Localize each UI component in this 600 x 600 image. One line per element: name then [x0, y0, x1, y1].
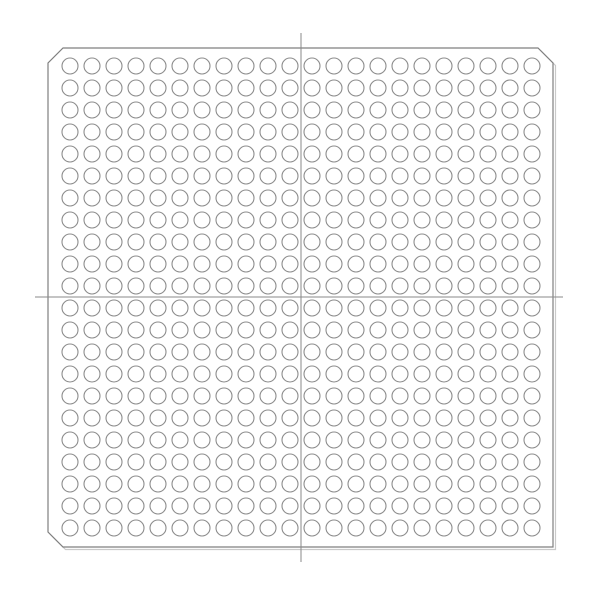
solder-ball — [370, 212, 386, 228]
solder-ball — [348, 388, 364, 404]
solder-ball — [480, 102, 496, 118]
solder-ball — [282, 498, 298, 514]
solder-ball — [238, 520, 254, 536]
solder-ball — [458, 476, 474, 492]
solder-ball — [150, 168, 166, 184]
solder-ball — [392, 58, 408, 74]
solder-ball — [84, 366, 100, 382]
solder-ball — [238, 256, 254, 272]
solder-ball — [502, 80, 518, 96]
solder-ball — [326, 388, 342, 404]
solder-ball — [502, 410, 518, 426]
solder-ball — [348, 498, 364, 514]
solder-ball — [304, 234, 320, 250]
solder-ball — [414, 124, 430, 140]
solder-ball — [502, 278, 518, 294]
solder-ball — [260, 344, 276, 360]
solder-ball — [172, 168, 188, 184]
solder-ball — [282, 344, 298, 360]
solder-ball — [128, 190, 144, 206]
solder-ball — [524, 432, 540, 448]
solder-ball — [370, 256, 386, 272]
solder-ball — [502, 212, 518, 228]
solder-ball — [172, 102, 188, 118]
solder-ball — [524, 58, 540, 74]
solder-ball — [238, 168, 254, 184]
solder-ball — [282, 146, 298, 162]
solder-ball — [238, 58, 254, 74]
solder-ball — [128, 58, 144, 74]
solder-ball — [216, 344, 232, 360]
solder-ball — [326, 476, 342, 492]
solder-ball — [392, 410, 408, 426]
solder-ball — [128, 454, 144, 470]
solder-ball — [502, 476, 518, 492]
solder-ball — [392, 520, 408, 536]
solder-ball — [348, 124, 364, 140]
solder-ball — [62, 410, 78, 426]
solder-ball — [458, 410, 474, 426]
solder-ball — [304, 520, 320, 536]
solder-ball — [480, 300, 496, 316]
solder-ball — [172, 256, 188, 272]
solder-ball — [502, 300, 518, 316]
solder-ball — [524, 124, 540, 140]
solder-ball — [194, 80, 210, 96]
solder-ball — [480, 476, 496, 492]
solder-ball — [502, 322, 518, 338]
solder-ball — [480, 212, 496, 228]
solder-ball — [370, 344, 386, 360]
solder-ball — [150, 410, 166, 426]
solder-ball — [436, 498, 452, 514]
solder-ball — [216, 520, 232, 536]
solder-ball — [524, 256, 540, 272]
solder-ball — [194, 388, 210, 404]
solder-ball — [458, 102, 474, 118]
solder-ball — [348, 300, 364, 316]
solder-ball — [106, 190, 122, 206]
solder-ball — [436, 168, 452, 184]
solder-ball — [106, 234, 122, 250]
solder-ball — [238, 322, 254, 338]
solder-ball — [458, 234, 474, 250]
solder-ball — [62, 498, 78, 514]
solder-ball — [128, 498, 144, 514]
solder-ball — [480, 454, 496, 470]
solder-ball — [84, 476, 100, 492]
solder-ball — [414, 432, 430, 448]
solder-ball — [480, 388, 496, 404]
solder-ball — [216, 278, 232, 294]
solder-ball — [304, 58, 320, 74]
solder-ball — [238, 102, 254, 118]
solder-ball — [150, 278, 166, 294]
solder-ball — [150, 520, 166, 536]
solder-ball — [480, 234, 496, 250]
solder-ball — [458, 454, 474, 470]
solder-ball — [370, 432, 386, 448]
solder-ball — [194, 190, 210, 206]
solder-ball — [62, 58, 78, 74]
solder-ball — [326, 322, 342, 338]
solder-ball — [458, 124, 474, 140]
solder-ball — [370, 410, 386, 426]
solder-ball — [216, 388, 232, 404]
solder-ball — [502, 102, 518, 118]
solder-ball — [128, 168, 144, 184]
solder-ball — [414, 168, 430, 184]
solder-ball — [216, 234, 232, 250]
solder-ball — [502, 256, 518, 272]
solder-ball — [458, 278, 474, 294]
solder-ball — [370, 366, 386, 382]
solder-ball — [150, 146, 166, 162]
solder-ball — [392, 168, 408, 184]
solder-ball — [480, 322, 496, 338]
solder-ball — [348, 256, 364, 272]
solder-ball — [502, 366, 518, 382]
solder-ball — [326, 212, 342, 228]
solder-ball — [436, 388, 452, 404]
solder-ball — [326, 498, 342, 514]
solder-ball — [128, 410, 144, 426]
solder-ball — [172, 278, 188, 294]
solder-ball — [216, 410, 232, 426]
solder-ball — [524, 498, 540, 514]
solder-ball — [502, 388, 518, 404]
solder-ball — [128, 256, 144, 272]
solder-ball — [216, 322, 232, 338]
solder-ball — [348, 520, 364, 536]
solder-ball — [480, 168, 496, 184]
solder-ball — [502, 454, 518, 470]
solder-ball — [62, 344, 78, 360]
solder-ball — [414, 344, 430, 360]
solder-ball — [128, 520, 144, 536]
solder-ball — [414, 256, 430, 272]
solder-ball — [194, 454, 210, 470]
solder-ball — [62, 520, 78, 536]
solder-ball — [524, 300, 540, 316]
solder-ball — [282, 520, 298, 536]
solder-ball — [128, 146, 144, 162]
solder-ball — [150, 58, 166, 74]
solder-ball — [84, 278, 100, 294]
solder-ball — [304, 366, 320, 382]
solder-ball — [370, 520, 386, 536]
solder-ball — [260, 520, 276, 536]
solder-ball — [348, 476, 364, 492]
solder-ball — [304, 432, 320, 448]
solder-ball — [84, 410, 100, 426]
solder-ball — [194, 234, 210, 250]
solder-ball — [128, 432, 144, 448]
solder-ball — [326, 366, 342, 382]
solder-ball — [238, 410, 254, 426]
solder-ball — [260, 146, 276, 162]
solder-ball — [502, 124, 518, 140]
solder-ball — [414, 322, 430, 338]
solder-ball — [238, 212, 254, 228]
solder-ball — [524, 322, 540, 338]
solder-ball — [172, 322, 188, 338]
solder-ball — [84, 344, 100, 360]
solder-ball — [304, 476, 320, 492]
solder-ball — [238, 366, 254, 382]
solder-ball — [304, 498, 320, 514]
solder-ball — [128, 212, 144, 228]
solder-ball — [106, 256, 122, 272]
solder-ball — [194, 102, 210, 118]
solder-ball — [436, 300, 452, 316]
solder-ball — [62, 168, 78, 184]
solder-ball — [282, 322, 298, 338]
solder-ball — [106, 168, 122, 184]
solder-ball — [436, 432, 452, 448]
solder-ball — [392, 498, 408, 514]
solder-ball — [128, 366, 144, 382]
solder-ball — [458, 80, 474, 96]
solder-ball — [282, 124, 298, 140]
solder-ball — [150, 300, 166, 316]
solder-ball — [216, 454, 232, 470]
solder-ball — [524, 212, 540, 228]
solder-ball — [414, 366, 430, 382]
solder-ball — [84, 102, 100, 118]
solder-ball — [150, 366, 166, 382]
solder-ball — [370, 58, 386, 74]
solder-ball — [194, 256, 210, 272]
solder-ball — [172, 124, 188, 140]
solder-ball — [524, 146, 540, 162]
solder-ball — [348, 344, 364, 360]
solder-ball — [524, 520, 540, 536]
solder-ball — [458, 344, 474, 360]
solder-ball — [150, 190, 166, 206]
solder-ball — [524, 102, 540, 118]
solder-ball — [282, 234, 298, 250]
solder-ball — [216, 300, 232, 316]
solder-ball — [172, 432, 188, 448]
solder-ball — [392, 124, 408, 140]
solder-ball — [282, 366, 298, 382]
solder-ball — [480, 58, 496, 74]
solder-ball — [304, 146, 320, 162]
solder-ball — [304, 102, 320, 118]
solder-ball — [458, 190, 474, 206]
solder-ball — [216, 256, 232, 272]
solder-ball — [106, 520, 122, 536]
solder-ball — [260, 102, 276, 118]
solder-ball — [326, 80, 342, 96]
solder-ball — [348, 80, 364, 96]
solder-ball — [524, 476, 540, 492]
solder-ball — [260, 454, 276, 470]
solder-ball — [106, 432, 122, 448]
solder-ball — [106, 344, 122, 360]
solder-ball — [392, 454, 408, 470]
solder-ball — [128, 388, 144, 404]
solder-ball — [524, 190, 540, 206]
solder-ball — [62, 278, 78, 294]
solder-ball — [238, 234, 254, 250]
solder-ball — [238, 80, 254, 96]
solder-ball — [84, 80, 100, 96]
solder-ball — [392, 344, 408, 360]
solder-ball — [304, 168, 320, 184]
solder-ball — [128, 476, 144, 492]
solder-ball — [502, 146, 518, 162]
solder-ball — [106, 80, 122, 96]
solder-ball — [150, 454, 166, 470]
solder-ball — [370, 168, 386, 184]
solder-ball — [370, 498, 386, 514]
solder-ball — [370, 454, 386, 470]
solder-ball — [260, 124, 276, 140]
solder-ball — [216, 498, 232, 514]
solder-ball — [370, 388, 386, 404]
solder-ball — [436, 102, 452, 118]
solder-ball — [84, 190, 100, 206]
solder-ball — [370, 146, 386, 162]
solder-ball — [128, 300, 144, 316]
solder-ball — [150, 498, 166, 514]
solder-ball — [480, 366, 496, 382]
solder-ball — [282, 432, 298, 448]
solder-ball — [436, 234, 452, 250]
solder-ball — [326, 300, 342, 316]
solder-ball — [238, 454, 254, 470]
solder-ball — [436, 124, 452, 140]
solder-ball — [304, 124, 320, 140]
solder-ball — [370, 190, 386, 206]
solder-ball — [414, 278, 430, 294]
solder-ball — [414, 454, 430, 470]
solder-ball — [194, 498, 210, 514]
solder-ball — [348, 58, 364, 74]
solder-ball — [326, 190, 342, 206]
solder-ball — [304, 344, 320, 360]
solder-ball — [150, 344, 166, 360]
solder-ball — [348, 322, 364, 338]
solder-ball — [348, 410, 364, 426]
solder-ball — [524, 388, 540, 404]
solder-ball — [502, 344, 518, 360]
solder-ball — [62, 80, 78, 96]
solder-ball — [348, 190, 364, 206]
solder-ball — [480, 498, 496, 514]
solder-ball — [414, 58, 430, 74]
solder-ball — [106, 366, 122, 382]
solder-ball — [370, 234, 386, 250]
solder-ball — [348, 146, 364, 162]
solder-ball — [458, 146, 474, 162]
solder-ball — [84, 432, 100, 448]
solder-ball — [370, 124, 386, 140]
solder-ball — [304, 256, 320, 272]
solder-ball — [370, 278, 386, 294]
solder-ball — [326, 124, 342, 140]
solder-ball — [238, 344, 254, 360]
solder-ball — [436, 322, 452, 338]
solder-ball — [172, 410, 188, 426]
solder-ball — [458, 366, 474, 382]
solder-ball — [150, 102, 166, 118]
solder-ball — [282, 454, 298, 470]
solder-ball — [260, 256, 276, 272]
solder-ball — [282, 388, 298, 404]
solder-ball — [502, 498, 518, 514]
solder-ball — [326, 234, 342, 250]
solder-ball — [216, 124, 232, 140]
solder-ball — [458, 520, 474, 536]
solder-ball — [304, 322, 320, 338]
solder-ball — [172, 520, 188, 536]
solder-ball — [260, 190, 276, 206]
solder-ball — [304, 410, 320, 426]
solder-ball — [150, 234, 166, 250]
solder-ball — [304, 80, 320, 96]
solder-ball — [458, 256, 474, 272]
solder-ball — [106, 388, 122, 404]
solder-ball — [238, 300, 254, 316]
solder-ball — [216, 432, 232, 448]
solder-ball — [62, 366, 78, 382]
solder-ball — [304, 300, 320, 316]
solder-ball — [128, 322, 144, 338]
solder-ball — [128, 278, 144, 294]
solder-ball — [172, 388, 188, 404]
solder-ball — [436, 58, 452, 74]
solder-ball — [106, 58, 122, 74]
solder-ball — [282, 58, 298, 74]
solder-ball — [282, 80, 298, 96]
solder-ball — [194, 168, 210, 184]
solder-ball — [414, 212, 430, 228]
solder-ball — [436, 190, 452, 206]
solder-ball — [392, 366, 408, 382]
solder-ball — [62, 454, 78, 470]
solder-ball — [62, 432, 78, 448]
solder-ball — [282, 410, 298, 426]
solder-ball — [194, 344, 210, 360]
solder-ball — [392, 190, 408, 206]
solder-ball — [194, 146, 210, 162]
solder-ball — [458, 498, 474, 514]
solder-ball — [392, 388, 408, 404]
solder-ball — [260, 388, 276, 404]
solder-ball — [62, 146, 78, 162]
solder-ball — [392, 146, 408, 162]
solder-ball — [106, 322, 122, 338]
solder-ball — [348, 278, 364, 294]
solder-ball — [216, 212, 232, 228]
solder-ball — [326, 432, 342, 448]
solder-ball — [502, 190, 518, 206]
package-diagram-svg — [0, 0, 600, 600]
solder-ball — [326, 58, 342, 74]
solder-ball — [282, 278, 298, 294]
solder-ball — [524, 410, 540, 426]
solder-ball — [392, 212, 408, 228]
solder-ball — [62, 256, 78, 272]
solder-ball — [172, 58, 188, 74]
solder-ball — [282, 256, 298, 272]
solder-ball — [194, 520, 210, 536]
solder-ball — [106, 212, 122, 228]
solder-ball — [216, 58, 232, 74]
